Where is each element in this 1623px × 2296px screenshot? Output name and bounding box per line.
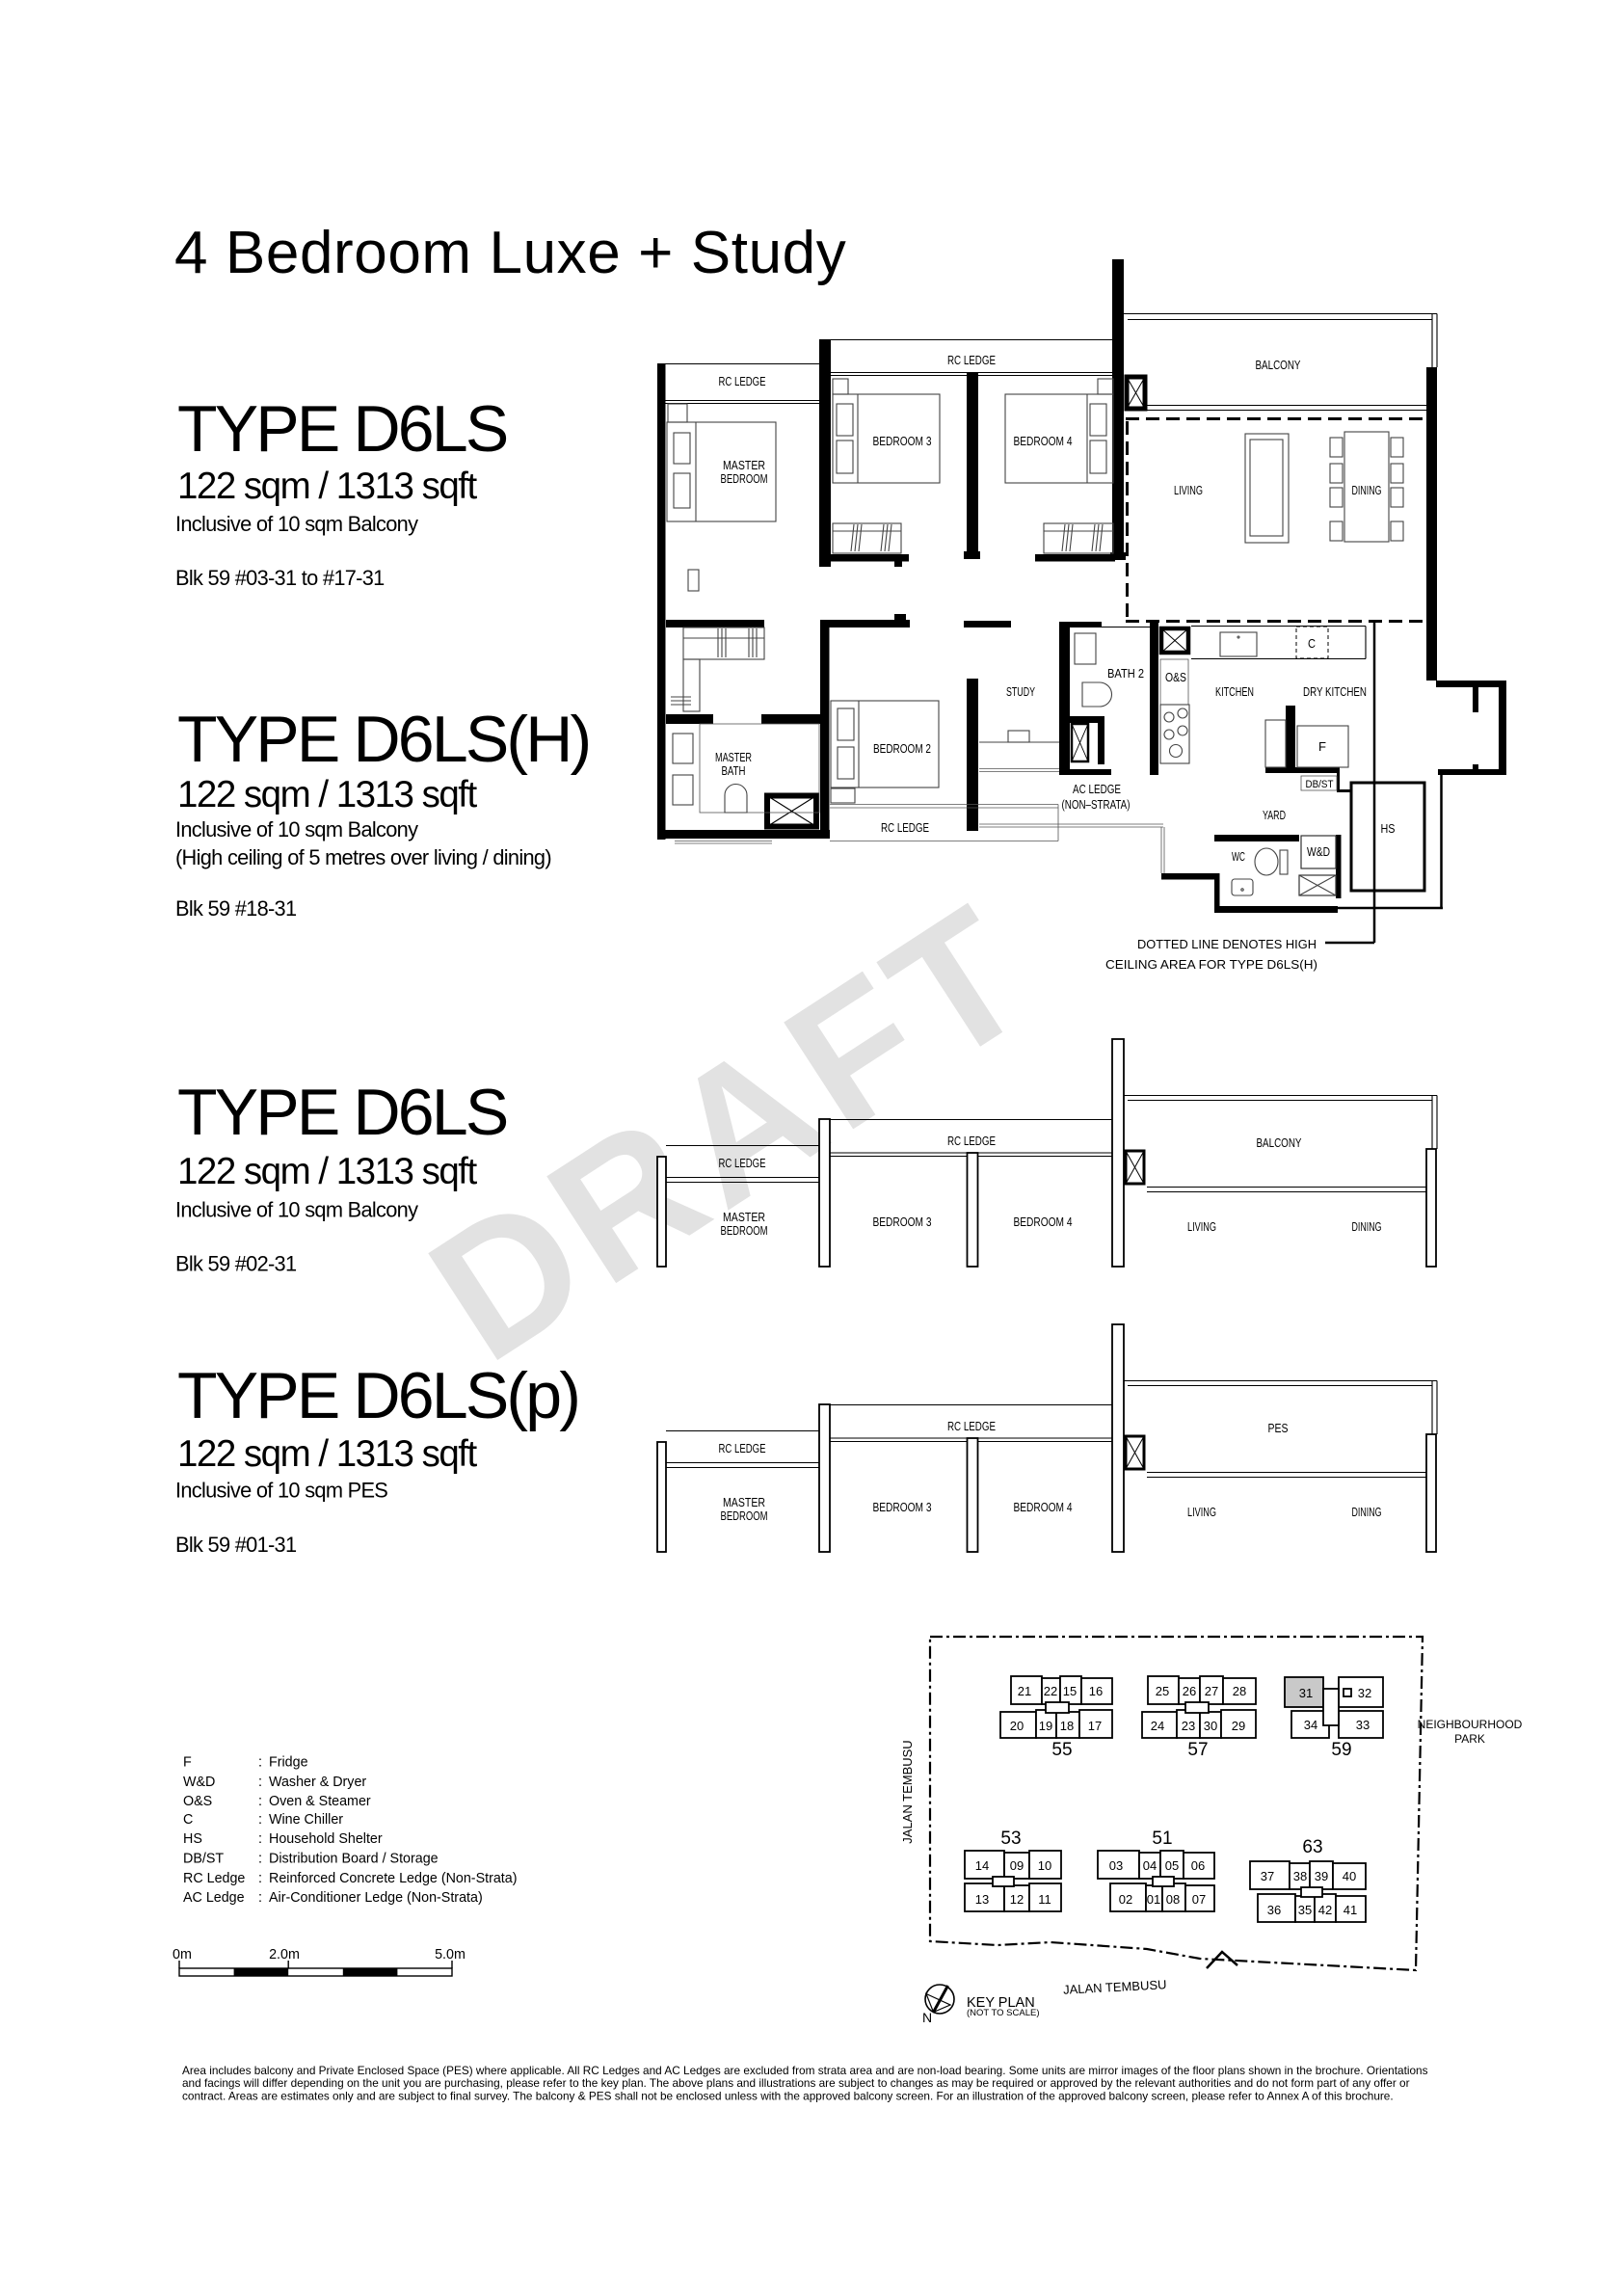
svg-text:BEDROOM 4: BEDROOM 4 — [1014, 434, 1073, 448]
svg-text:TYPE D6LS(H): TYPE D6LS(H) — [177, 703, 589, 776]
svg-text::: : — [258, 1852, 262, 1867]
svg-text:Wine Chiller: Wine Chiller — [269, 1812, 343, 1828]
svg-text:WC: WC — [1232, 849, 1245, 864]
svg-text:JALAN TEMBUSU: JALAN TEMBUSU — [900, 1740, 915, 1843]
svg-text:(NON–STRATA): (NON–STRATA) — [1062, 797, 1131, 812]
svg-text:F: F — [183, 1755, 192, 1771]
svg-text:122 sqm / 1313 sqft: 122 sqm / 1313 sqft — [177, 1433, 477, 1475]
svg-text:13: 13 — [975, 1892, 989, 1907]
svg-text:39: 39 — [1315, 1869, 1328, 1883]
svg-text:53: 53 — [1000, 1829, 1021, 1849]
svg-text:CEILING AREA FOR TYPE D6LS: CEILING AREA FOR TYPE D6LS(H) — [1105, 957, 1317, 972]
svg-text:09: 09 — [1010, 1858, 1024, 1873]
svg-text:BALCONY: BALCONY — [1256, 358, 1301, 372]
svg-text:41: 41 — [1344, 1903, 1357, 1917]
svg-text:(NOT TO SCALE): (NOT TO SCALE) — [967, 2008, 1040, 2018]
svg-text:Blk 59 #03-31 to #17-31: Blk 59 #03-31 to #17-31 — [175, 566, 385, 590]
svg-text:28: 28 — [1233, 1684, 1246, 1698]
svg-text:LIVING: LIVING — [1174, 483, 1203, 497]
svg-text:10: 10 — [1038, 1858, 1051, 1873]
svg-text:AC LEDGE: AC LEDGE — [1073, 782, 1121, 796]
svg-text::: : — [258, 1775, 262, 1790]
svg-text:BEDROOM: BEDROOM — [721, 471, 768, 486]
svg-text:29: 29 — [1232, 1719, 1245, 1733]
svg-text:59: 59 — [1331, 1740, 1351, 1760]
svg-text:BATH 2: BATH 2 — [1107, 666, 1144, 681]
svg-text:PES: PES — [1268, 1421, 1289, 1435]
svg-text:Blk 59 #01-31: Blk 59 #01-31 — [175, 1533, 297, 1557]
svg-text:40: 40 — [1343, 1869, 1356, 1883]
svg-text:BEDROOM: BEDROOM — [721, 1223, 768, 1238]
svg-text:26: 26 — [1183, 1684, 1196, 1698]
svg-text:0m: 0m — [173, 1947, 192, 1962]
svg-text:11: 11 — [1038, 1892, 1051, 1907]
svg-text:32: 32 — [1358, 1686, 1371, 1700]
svg-text:N: N — [922, 2010, 932, 2025]
svg-text:BEDROOM 3: BEDROOM 3 — [873, 434, 932, 448]
svg-text:08: 08 — [1166, 1892, 1180, 1907]
svg-text:12: 12 — [1010, 1892, 1024, 1907]
svg-text:06: 06 — [1191, 1858, 1205, 1873]
svg-text:BEDROOM: BEDROOM — [721, 1508, 768, 1523]
svg-text:PARK: PARK — [1454, 1732, 1485, 1746]
svg-text:BEDROOM 3: BEDROOM 3 — [873, 1215, 932, 1229]
svg-text:BEDROOM 2: BEDROOM 2 — [873, 741, 931, 756]
svg-text:HS: HS — [1381, 821, 1396, 836]
svg-text:RC Ledge: RC Ledge — [183, 1871, 245, 1886]
svg-text:20: 20 — [1010, 1719, 1024, 1733]
svg-text:30: 30 — [1204, 1719, 1217, 1733]
svg-text:TYPE D6LS: TYPE D6LS — [177, 392, 507, 466]
svg-text:34: 34 — [1304, 1718, 1317, 1732]
svg-text:NEIGHBOURHOOD: NEIGHBOURHOOD — [1418, 1718, 1523, 1731]
svg-text:MASTER: MASTER — [723, 458, 765, 472]
svg-text:BEDROOM 4: BEDROOM 4 — [1014, 1500, 1073, 1514]
svg-text:BEDROOM 4: BEDROOM 4 — [1014, 1215, 1073, 1229]
svg-text:Blk 59 #18-31: Blk 59 #18-31 — [175, 896, 297, 921]
svg-text:W&D: W&D — [1307, 844, 1330, 859]
svg-text:MASTER: MASTER — [723, 1495, 765, 1509]
svg-text:MASTER: MASTER — [715, 750, 752, 764]
svg-text:33: 33 — [1356, 1718, 1370, 1732]
svg-text:51: 51 — [1152, 1829, 1172, 1849]
svg-text:O&S: O&S — [1165, 670, 1186, 684]
svg-text:05: 05 — [1165, 1858, 1179, 1873]
svg-text:38: 38 — [1293, 1869, 1307, 1883]
svg-text:BEDROOM 3: BEDROOM 3 — [873, 1500, 932, 1514]
svg-text:07: 07 — [1192, 1892, 1206, 1907]
svg-text:24: 24 — [1151, 1719, 1164, 1733]
svg-text:KITCHEN: KITCHEN — [1215, 684, 1254, 699]
svg-text:4 Bedroom Luxe + Study: 4 Bedroom Luxe + Study — [174, 220, 846, 286]
svg-text:31: 31 — [1299, 1686, 1313, 1700]
svg-text:LIVING: LIVING — [1187, 1219, 1216, 1234]
svg-text:02: 02 — [1119, 1892, 1132, 1907]
svg-text:C: C — [1308, 636, 1316, 651]
svg-text:W&D: W&D — [183, 1775, 215, 1790]
svg-text:42: 42 — [1318, 1903, 1332, 1917]
svg-text:14: 14 — [975, 1858, 989, 1873]
svg-text:Inclusive of 10 sqm Balcony: Inclusive of 10 sqm Balcony — [175, 1198, 418, 1222]
svg-text:Household Shelter: Household Shelter — [269, 1831, 383, 1847]
svg-text:27: 27 — [1205, 1684, 1218, 1698]
svg-text:01: 01 — [1147, 1892, 1160, 1907]
svg-text:Air-Conditioner Ledge (Non-Str: Air-Conditioner Ledge (Non-Strata) — [269, 1890, 483, 1906]
svg-text:37: 37 — [1261, 1869, 1274, 1883]
svg-text:TYPE D6LS: TYPE D6LS — [177, 1076, 507, 1149]
svg-text:25: 25 — [1156, 1684, 1169, 1698]
svg-text:2.0m: 2.0m — [269, 1947, 300, 1962]
svg-text:RC LEDGE: RC LEDGE — [947, 353, 996, 367]
svg-text:03: 03 — [1109, 1858, 1123, 1873]
svg-text::: : — [258, 1890, 262, 1906]
svg-text:19: 19 — [1039, 1719, 1052, 1733]
svg-text:HS: HS — [183, 1831, 202, 1847]
svg-text:Reinforced Concrete Ledge (Non: Reinforced Concrete Ledge (Non-Strata) — [269, 1871, 517, 1886]
svg-text:122 sqm / 1313 sqft: 122 sqm / 1313 sqft — [177, 1151, 477, 1192]
svg-text:57: 57 — [1187, 1740, 1208, 1760]
svg-text:63: 63 — [1302, 1837, 1322, 1857]
svg-text:Oven & Steamer: Oven & Steamer — [269, 1794, 371, 1809]
svg-text:BALCONY: BALCONY — [1257, 1135, 1302, 1150]
svg-text:04: 04 — [1143, 1858, 1157, 1873]
svg-text:contract. Areas are estimates: contract. Areas are estimates only and a… — [182, 2089, 1394, 2102]
svg-text:MASTER: MASTER — [723, 1210, 765, 1224]
svg-text::: : — [258, 1794, 262, 1809]
svg-text:(High ceiling of 5 metres over: (High ceiling of 5 metres over living / … — [175, 845, 551, 869]
svg-text:16: 16 — [1089, 1684, 1103, 1698]
svg-text:5.0m: 5.0m — [435, 1947, 466, 1962]
svg-text:C: C — [183, 1812, 193, 1828]
svg-text:122 sqm / 1313 sqft: 122 sqm / 1313 sqft — [177, 466, 477, 507]
svg-text::: : — [258, 1812, 262, 1828]
svg-text:TYPE D6LS(p): TYPE D6LS(p) — [177, 1359, 578, 1432]
svg-text:F: F — [1318, 739, 1326, 754]
svg-text:RC LEDGE: RC LEDGE — [719, 1156, 766, 1170]
svg-text:DB/ST: DB/ST — [1306, 779, 1334, 790]
svg-text:DINING: DINING — [1352, 1219, 1382, 1234]
svg-text:Inclusive of 10 sqm Balcony: Inclusive of 10 sqm Balcony — [175, 817, 418, 841]
svg-text:36: 36 — [1267, 1903, 1281, 1917]
svg-text:15: 15 — [1063, 1684, 1077, 1698]
svg-text:AC Ledge: AC Ledge — [183, 1890, 245, 1906]
svg-text:DINING: DINING — [1352, 1505, 1382, 1519]
svg-text:Distribution Board / Storage: Distribution Board / Storage — [269, 1852, 439, 1867]
svg-text:23: 23 — [1182, 1719, 1195, 1733]
svg-text:DINING: DINING — [1352, 483, 1382, 497]
svg-text:Inclusive of 10 sqm PES: Inclusive of 10 sqm PES — [175, 1479, 387, 1503]
svg-text:35: 35 — [1298, 1903, 1312, 1917]
svg-text:Area includes balcony and Priv: Area includes balcony and Private Enclos… — [182, 2064, 1428, 2077]
svg-text:Blk 59 #02-31: Blk 59 #02-31 — [175, 1252, 297, 1276]
svg-text:RC LEDGE: RC LEDGE — [947, 1419, 996, 1433]
svg-text::: : — [258, 1871, 262, 1886]
svg-text:Inclusive of 10 sqm Balcony: Inclusive of 10 sqm Balcony — [175, 512, 418, 536]
svg-text:Fridge: Fridge — [269, 1755, 308, 1771]
svg-text:RC LEDGE: RC LEDGE — [719, 1441, 766, 1455]
svg-text:LIVING: LIVING — [1187, 1505, 1216, 1519]
svg-text:17: 17 — [1088, 1719, 1102, 1733]
svg-text:DB/ST: DB/ST — [183, 1852, 224, 1867]
svg-text:DOTTED LINE DENOTES HIGH: DOTTED LINE DENOTES HIGH — [1137, 937, 1317, 951]
svg-text:O&S: O&S — [183, 1794, 212, 1809]
svg-text::: : — [258, 1755, 262, 1771]
svg-text:Washer & Dryer: Washer & Dryer — [269, 1775, 366, 1790]
svg-text:22: 22 — [1044, 1684, 1057, 1698]
svg-text:STUDY: STUDY — [1006, 684, 1035, 699]
svg-text:DRY KITCHEN: DRY KITCHEN — [1303, 684, 1367, 699]
svg-text:55: 55 — [1051, 1740, 1072, 1760]
svg-text:RC LEDGE: RC LEDGE — [881, 820, 929, 835]
svg-text:YARD: YARD — [1263, 808, 1286, 822]
svg-text:and facings will differ depend: and facings will differ depending on the… — [182, 2076, 1410, 2090]
svg-text::: : — [258, 1831, 262, 1847]
svg-text:BATH: BATH — [722, 763, 746, 778]
svg-text:18: 18 — [1060, 1719, 1074, 1733]
svg-text:122 sqm / 1313 sqft: 122 sqm / 1313 sqft — [177, 774, 477, 815]
svg-text:RC LEDGE: RC LEDGE — [947, 1134, 996, 1148]
svg-text:RC LEDGE: RC LEDGE — [719, 374, 766, 388]
svg-text:21: 21 — [1018, 1684, 1031, 1698]
